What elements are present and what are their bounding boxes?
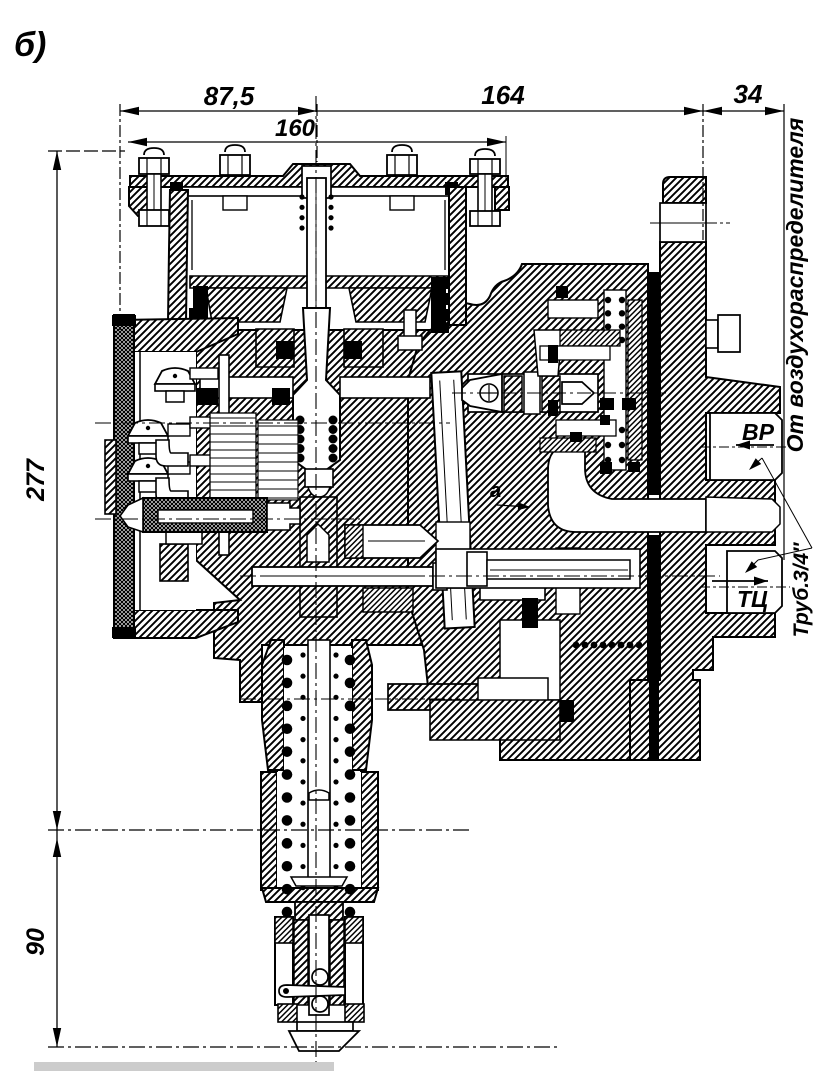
svg-text:Труб.3/4″: Труб.3/4″ xyxy=(790,542,813,638)
svg-text:164: 164 xyxy=(481,80,525,110)
svg-text:ТЦ: ТЦ xyxy=(737,586,768,612)
svg-text:От воздухораспределителя: От воздухораспределителя xyxy=(782,117,808,452)
svg-text:34: 34 xyxy=(734,79,763,109)
svg-text:90: 90 xyxy=(22,928,50,956)
svg-text:87,5: 87,5 xyxy=(204,81,255,111)
svg-text:б): б) xyxy=(14,26,46,64)
svg-text:ВР: ВР xyxy=(742,419,775,445)
svg-text:а: а xyxy=(490,480,501,502)
svg-text:160: 160 xyxy=(275,115,316,142)
svg-text:277: 277 xyxy=(22,458,50,502)
